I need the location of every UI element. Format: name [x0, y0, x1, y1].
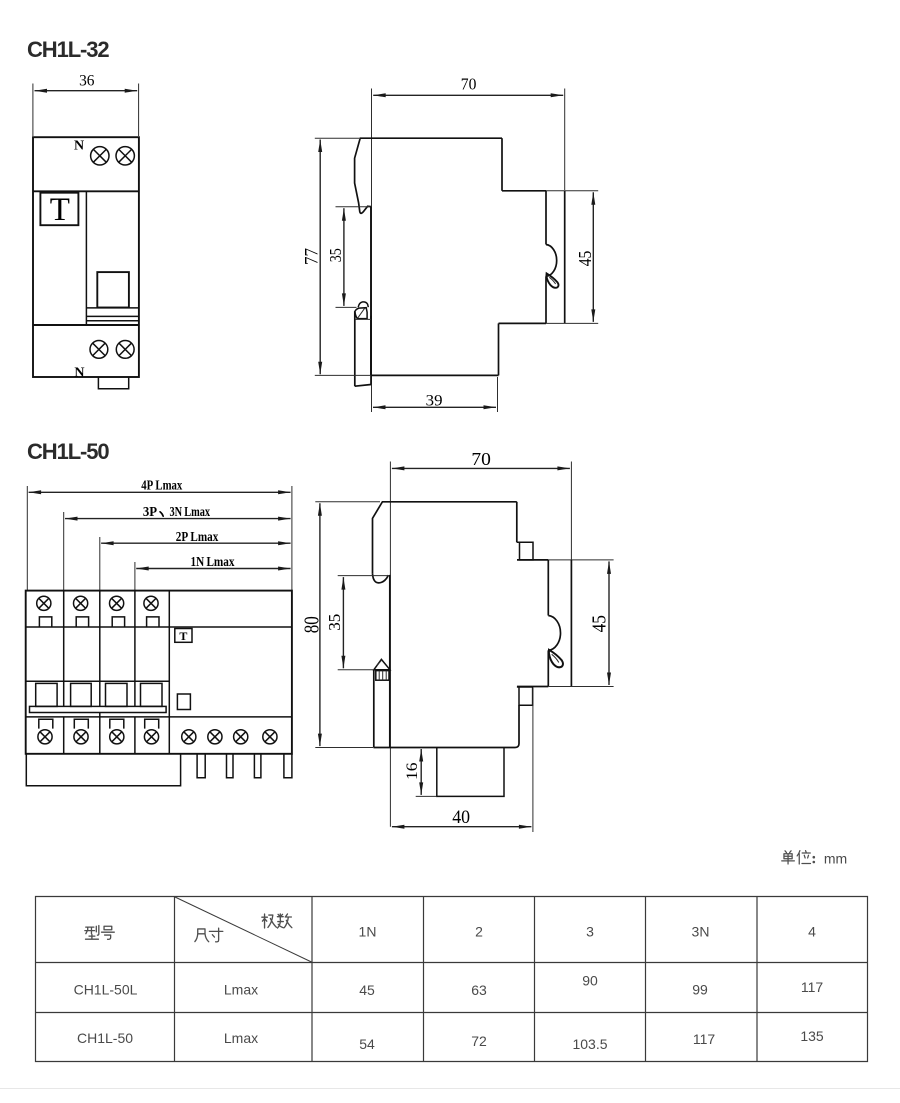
svg-text:99: 99 — [692, 982, 708, 998]
svg-text:4: 4 — [808, 924, 816, 940]
svg-text:40: 40 — [452, 807, 470, 828]
svg-text:3P: 3P — [143, 505, 158, 520]
svg-text:16: 16 — [404, 762, 421, 780]
svg-text:3N: 3N — [692, 924, 710, 940]
svg-text:36: 36 — [79, 73, 94, 90]
svg-text:T: T — [179, 629, 187, 643]
svg-text:103.5: 103.5 — [572, 1036, 607, 1052]
svg-text:2: 2 — [475, 924, 483, 940]
svg-text:35: 35 — [326, 248, 345, 262]
svg-text:CH1L-50: CH1L-50 — [27, 439, 109, 464]
svg-text:mm: mm — [824, 850, 847, 866]
svg-text:CH1L-32: CH1L-32 — [27, 37, 109, 62]
svg-text:70: 70 — [461, 75, 477, 94]
svg-text:T: T — [50, 192, 70, 228]
svg-text:54: 54 — [359, 1036, 375, 1052]
svg-text:63: 63 — [471, 982, 487, 998]
svg-text:117: 117 — [693, 1031, 716, 1047]
svg-text:72: 72 — [471, 1033, 487, 1049]
svg-text:135: 135 — [800, 1028, 824, 1044]
svg-text:Lmax: Lmax — [224, 1030, 258, 1046]
svg-text:117: 117 — [801, 979, 824, 995]
svg-text:77: 77 — [302, 248, 323, 265]
svg-text:70: 70 — [471, 449, 491, 469]
svg-text:45: 45 — [575, 250, 595, 266]
svg-text:1N: 1N — [359, 924, 377, 940]
svg-text:N: N — [74, 139, 84, 154]
svg-text:1N Lmax: 1N Lmax — [191, 555, 235, 570]
svg-text:Lmax: Lmax — [224, 982, 258, 998]
svg-text:90: 90 — [582, 973, 598, 989]
svg-text:45: 45 — [588, 615, 610, 632]
svg-text:45: 45 — [359, 982, 375, 998]
svg-text:3: 3 — [586, 924, 594, 940]
svg-text:35: 35 — [325, 614, 344, 631]
svg-text:4P Lmax: 4P Lmax — [141, 479, 182, 494]
svg-text:CH1L-50: CH1L-50 — [77, 1030, 133, 1046]
svg-text:3N Lmax: 3N Lmax — [170, 505, 211, 520]
svg-text:N: N — [74, 366, 84, 381]
svg-text:CH1L-50L: CH1L-50L — [74, 982, 138, 998]
